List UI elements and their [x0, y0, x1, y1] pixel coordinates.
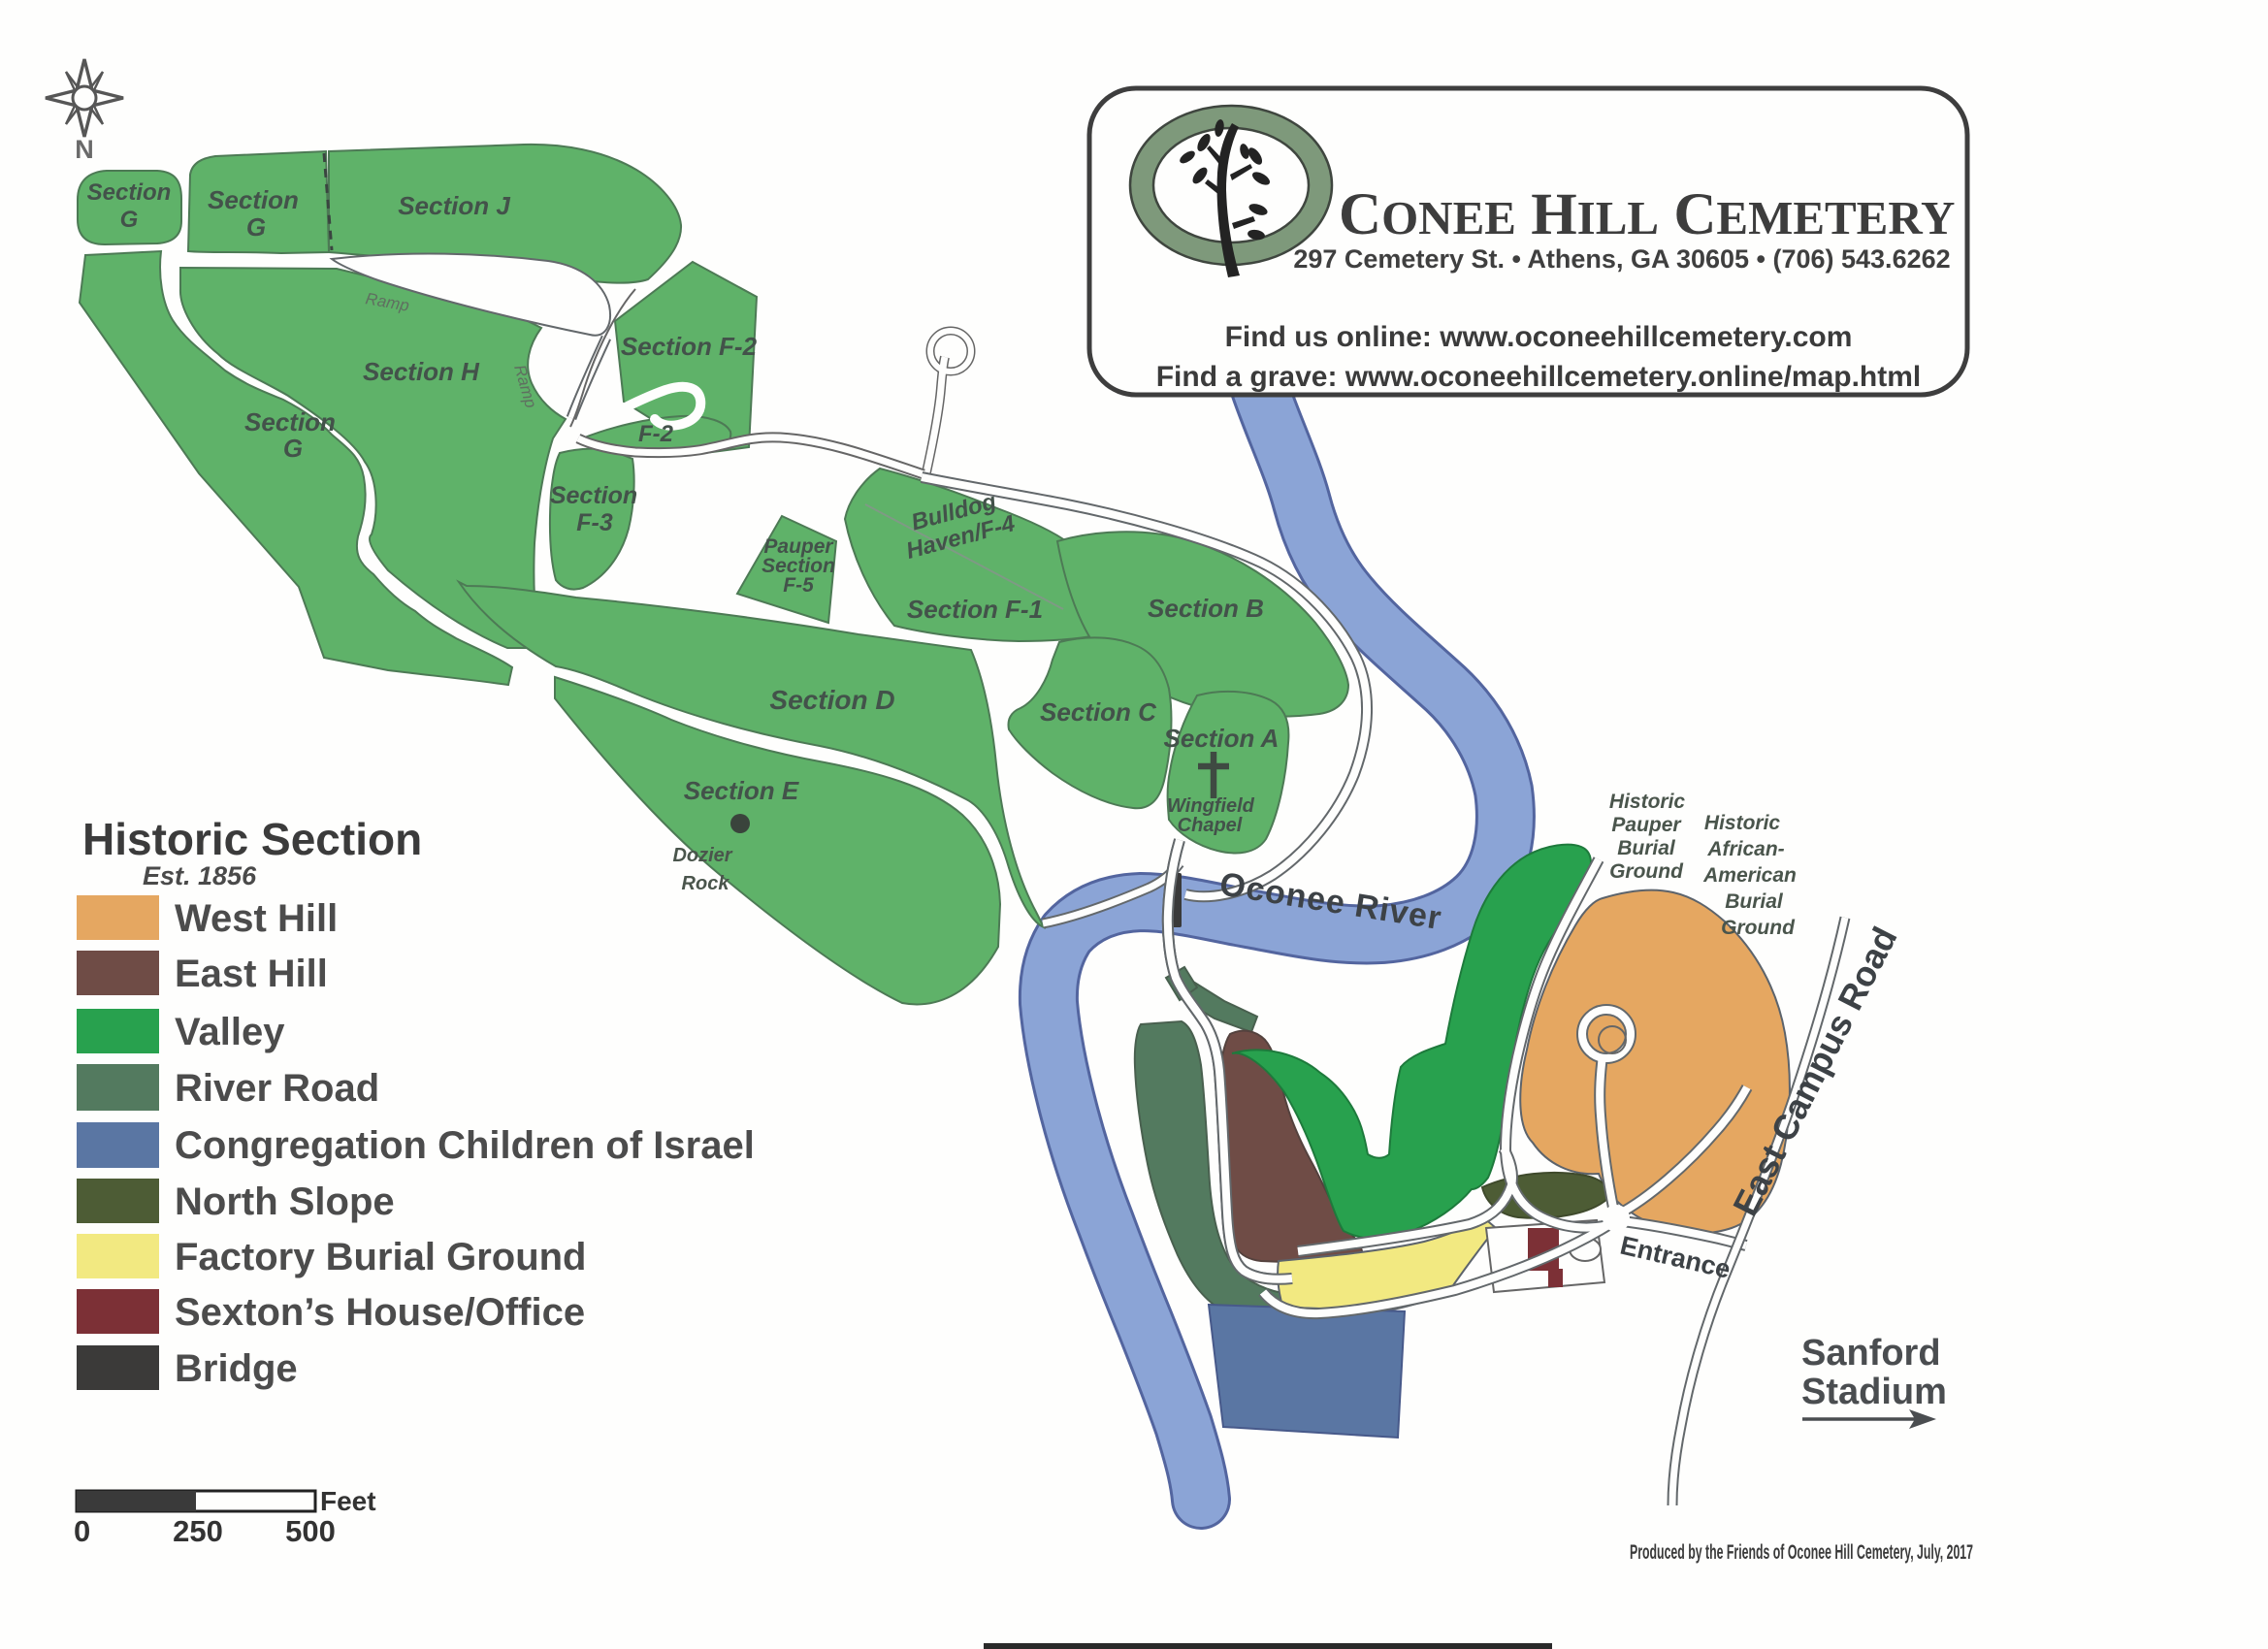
svg-text:Pauper: Pauper: [1611, 814, 1682, 836]
svg-text:Ground: Ground: [1609, 860, 1684, 883]
svg-text:Est. 1856: Est. 1856: [143, 861, 257, 890]
svg-text:Burial: Burial: [1617, 837, 1676, 859]
svg-text:Dozier: Dozier: [672, 845, 732, 866]
svg-text:G: G: [283, 434, 303, 463]
svg-text:West Hill: West Hill: [175, 897, 338, 940]
svg-text:North Slope: North Slope: [175, 1180, 395, 1223]
svg-text:Section A: Section A: [1164, 724, 1280, 753]
svg-text:Sanford: Sanford: [1801, 1333, 1941, 1374]
svg-text:Section: Section: [208, 185, 299, 214]
svg-text:F-5: F-5: [783, 574, 814, 597]
svg-text:River Road: River Road: [175, 1067, 379, 1110]
svg-text:250: 250: [173, 1514, 223, 1548]
svg-text:Rock: Rock: [682, 873, 730, 894]
svg-text:500: 500: [285, 1514, 336, 1548]
svg-text:Section E: Section E: [684, 776, 799, 805]
svg-text:Find us online: www.oconeehill: Find us online: www.oconeehillcemetery.c…: [1225, 321, 1853, 353]
svg-text:Section J: Section J: [398, 191, 510, 220]
svg-text:Factory Burial Ground: Factory Burial Ground: [175, 1236, 587, 1278]
svg-text:East Hill: East Hill: [175, 953, 328, 995]
svg-text:Section H: Section H: [363, 357, 480, 386]
svg-text:Chapel: Chapel: [1178, 815, 1243, 836]
svg-text:American: American: [1702, 864, 1797, 887]
svg-text:African-: African-: [1706, 838, 1784, 860]
svg-text:Valley: Valley: [175, 1011, 285, 1053]
svg-text:Section: Section: [550, 482, 637, 509]
svg-text:Section D: Section D: [769, 685, 894, 715]
svg-text:Ground: Ground: [1721, 917, 1796, 939]
svg-text:0: 0: [74, 1514, 90, 1548]
svg-text:Historic: Historic: [1609, 791, 1686, 813]
svg-text:G: G: [246, 212, 266, 242]
svg-text:G: G: [120, 207, 139, 233]
svg-text:Section: Section: [244, 407, 336, 436]
svg-text:Section F-2: Section F-2: [621, 332, 758, 361]
svg-text:Produced by the Friends of Oco: Produced by the Friends of Oconee Hill C…: [1630, 1541, 1973, 1564]
svg-text:N: N: [75, 135, 94, 164]
svg-text:F-3: F-3: [576, 509, 613, 536]
svg-text:Section C: Section C: [1040, 697, 1157, 727]
svg-text:CONEE HILL CEMETERY: CONEE HILL CEMETERY: [1339, 182, 1955, 247]
svg-text:Bridge: Bridge: [175, 1347, 298, 1390]
svg-text:Section: Section: [87, 179, 172, 206]
svg-text:Sexton’s House/Office: Sexton’s House/Office: [175, 1291, 585, 1334]
svg-text:Feet: Feet: [320, 1486, 376, 1516]
svg-text:Section B: Section B: [1148, 594, 1264, 623]
svg-text:297 Cemetery St. • Athens, GA: 297 Cemetery St. • Athens, GA 30605 • (7…: [1293, 244, 1950, 274]
svg-text:Historic: Historic: [1704, 812, 1781, 834]
svg-text:Burial: Burial: [1725, 890, 1784, 913]
svg-text:Stadium: Stadium: [1801, 1372, 1947, 1412]
svg-text:F-2: F-2: [638, 421, 674, 447]
svg-text:Congregation Children of Israe: Congregation Children of Israel: [175, 1124, 755, 1167]
svg-text:Historic Section: Historic Section: [82, 814, 422, 864]
svg-text:Section F-1: Section F-1: [907, 595, 1043, 624]
svg-text:Find a grave: www.oconeehillc: Find a grave: www.oconeehillcemetery.onl…: [1156, 361, 1922, 393]
svg-text:Wingfield: Wingfield: [1167, 795, 1255, 817]
